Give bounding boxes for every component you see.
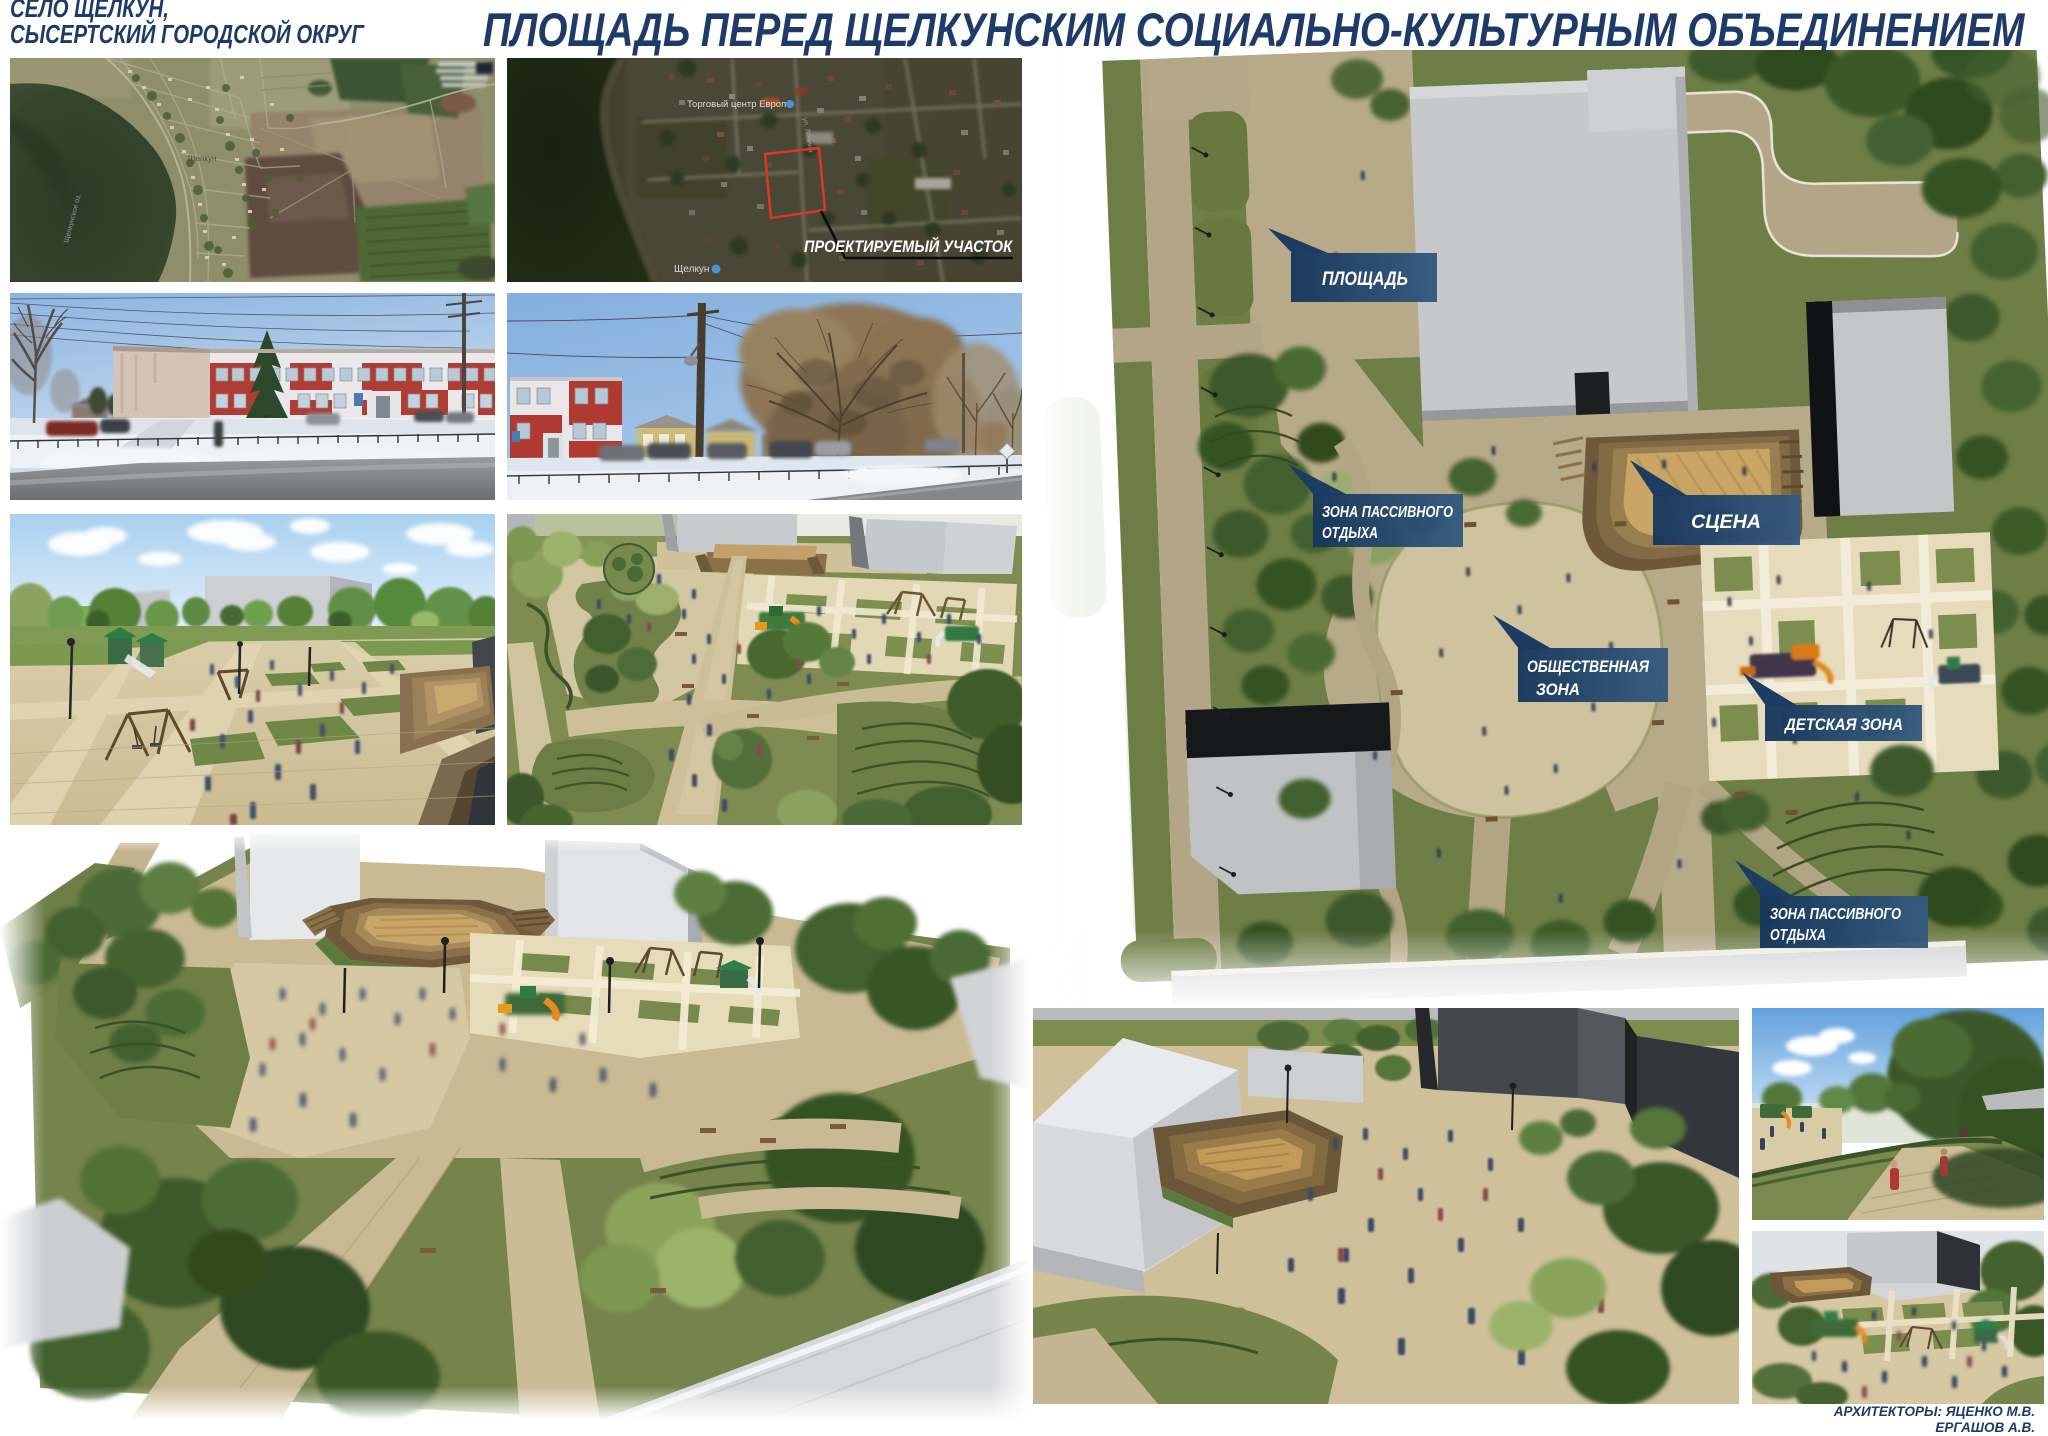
svg-text:Щелкун: Щелкун xyxy=(674,264,709,275)
svg-text:ОБЩЕСТВЕННАЯ: ОБЩЕСТВЕННАЯ xyxy=(1527,658,1650,676)
svg-text:ЗОНА ПАССИВНОГО: ЗОНА ПАССИВНОГО xyxy=(1770,906,1901,923)
svg-text:Торговый центр Европа: Торговый центр Европа xyxy=(687,99,792,110)
svg-text:ОТДЫХА: ОТДЫХА xyxy=(1322,525,1378,542)
svg-text:ЗОНА: ЗОНА xyxy=(1536,681,1580,699)
svg-text:ДЕТСКАЯ ЗОНА: ДЕТСКАЯ ЗОНА xyxy=(1783,716,1903,734)
svg-text:ПЛОЩАДЬ: ПЛОЩАДЬ xyxy=(1322,269,1408,290)
svg-text:ПРОЕКТИРУЕМЫЙ УЧАСТОК: ПРОЕКТИРУЕМЫЙ УЧАСТОК xyxy=(804,236,1014,256)
svg-text:Щелкун: Щелкун xyxy=(188,154,216,163)
svg-text:СЦЕНА: СЦЕНА xyxy=(1691,512,1761,533)
svg-text:ЗОНА ПАССИВНОГО: ЗОНА ПАССИВНОГО xyxy=(1322,504,1453,521)
svg-text:ОТДЫХА: ОТДЫХА xyxy=(1770,927,1826,944)
